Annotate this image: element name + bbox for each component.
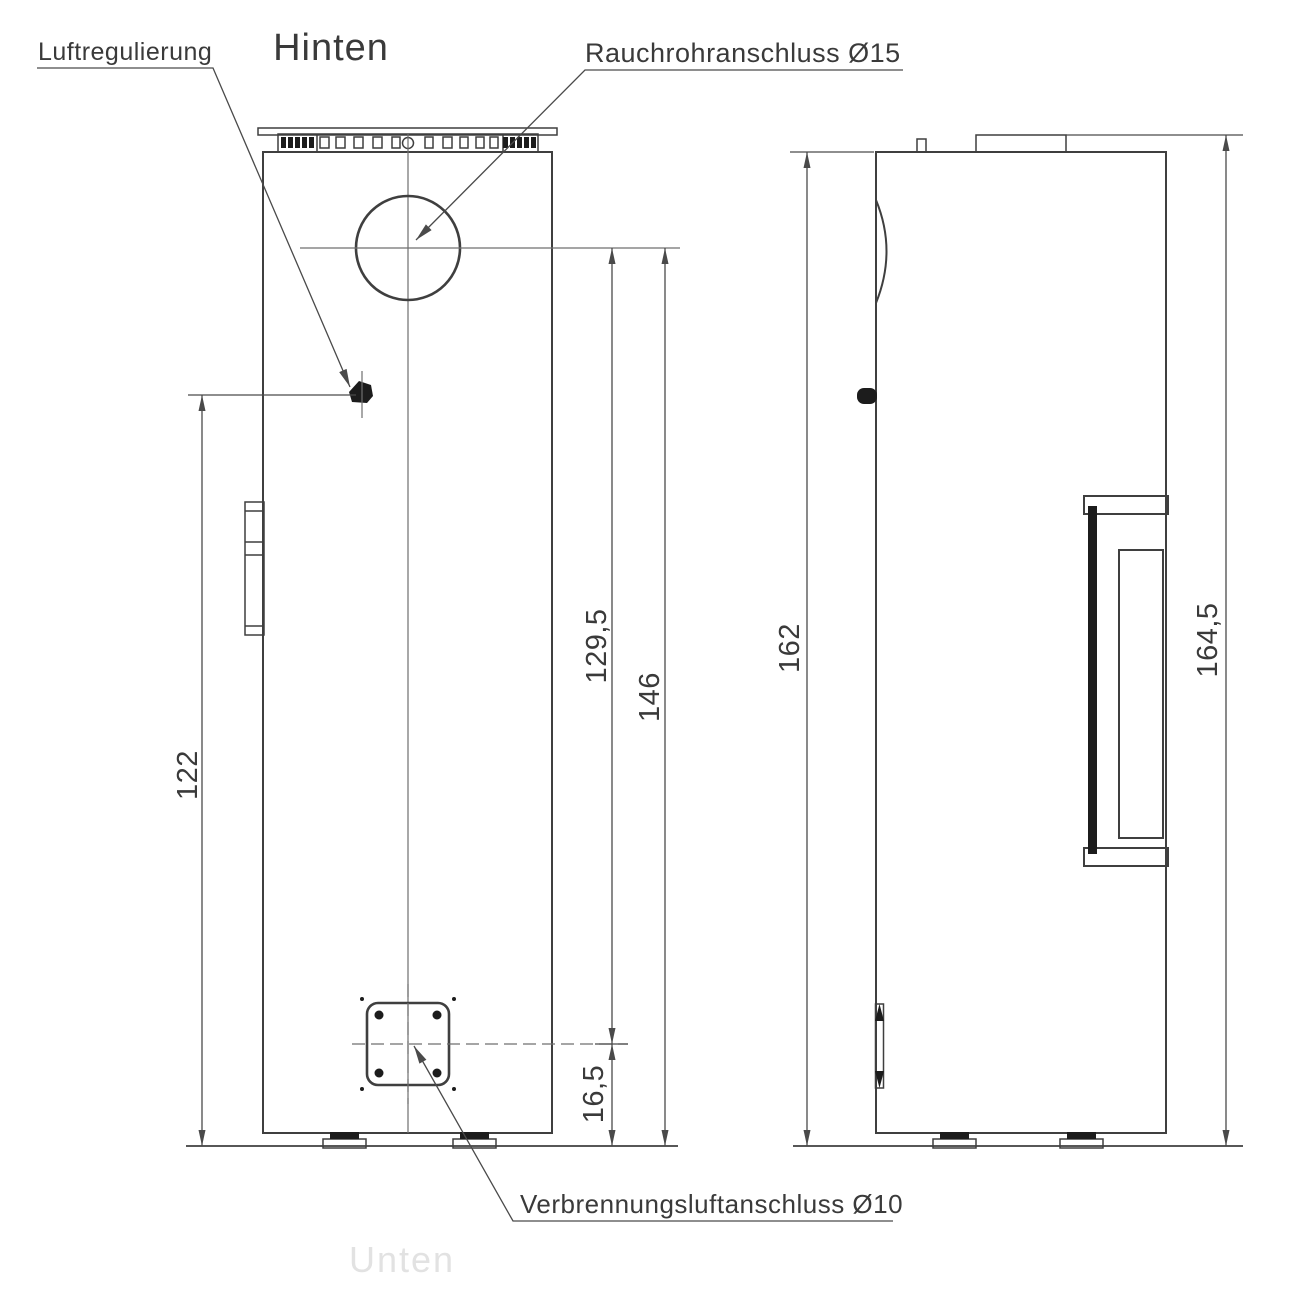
dim-122-label: 122 <box>172 750 204 800</box>
faint-view-title-unten: Unten <box>349 1239 455 1280</box>
label-air-regulation: Luftregulierung <box>37 38 350 387</box>
vent-slot <box>336 137 345 148</box>
side-view <box>793 135 1243 1148</box>
dim-16-5-label: 16,5 <box>578 1065 610 1123</box>
vent-slot <box>531 137 536 148</box>
air-regulation-leader <box>37 68 350 387</box>
stove-technical-drawing: 122 129,5 16,5 146 162 164,5 Luftregulie… <box>0 0 1300 1300</box>
dim-162-label: 162 <box>774 623 806 673</box>
vent-slot <box>503 137 508 148</box>
combustion-air-text: Verbrennungsluftanschluss Ø10 <box>520 1189 903 1219</box>
dim-146-label: 146 <box>634 672 666 722</box>
technical-drawing-page: 122 129,5 16,5 146 162 164,5 Luftregulie… <box>0 0 1300 1300</box>
vent-slot <box>373 137 382 148</box>
top-plate-side-profile <box>976 135 1066 152</box>
door-hinge <box>245 502 264 635</box>
top-lever-notch <box>917 139 926 152</box>
vent-slot <box>517 137 522 148</box>
air-regulation-knob <box>349 381 373 403</box>
vent-slot <box>295 137 300 148</box>
vent-slot <box>354 137 363 148</box>
air-regulation-arrow <box>339 369 350 387</box>
vent-slot <box>320 137 329 148</box>
combustion-air-arrow <box>414 1046 426 1064</box>
air-regulation-knob-side <box>857 388 877 404</box>
door-glass-pane <box>1119 550 1163 838</box>
stove-body-side <box>876 152 1166 1133</box>
flue-connection-text: Rauchrohranschluss Ø15 <box>585 38 901 68</box>
vent-slot <box>392 137 400 148</box>
vent-slot <box>443 137 452 148</box>
vent-slot <box>302 137 307 148</box>
dim-164-5-label: 164,5 <box>1192 602 1224 677</box>
flue-hole-arc <box>876 200 887 303</box>
dim-129-5-label: 129,5 <box>581 608 613 683</box>
dimension-16-5: 16,5 <box>578 1044 628 1146</box>
air-regulation-text: Luftregulierung <box>38 38 212 66</box>
dimension-146: 146 <box>634 248 668 1146</box>
side-glass-door <box>1084 496 1168 866</box>
door-gasket-strip <box>1088 506 1097 854</box>
dimension-162: 162 <box>774 152 874 1146</box>
vent-slot <box>281 137 286 148</box>
view-title-hinten: Hinten <box>273 27 389 69</box>
label-flue-connection: Rauchrohranschluss Ø15 <box>416 38 903 240</box>
vent-slot <box>309 137 314 148</box>
vent-slot <box>288 137 293 148</box>
vent-slot <box>476 137 484 148</box>
vent-slot <box>460 137 468 148</box>
vent-slot <box>490 137 498 148</box>
dimension-129-5: 129,5 <box>581 248 615 1044</box>
vent-slot <box>524 137 529 148</box>
vent-slot <box>425 137 433 148</box>
flue-connection-leader <box>416 70 903 240</box>
